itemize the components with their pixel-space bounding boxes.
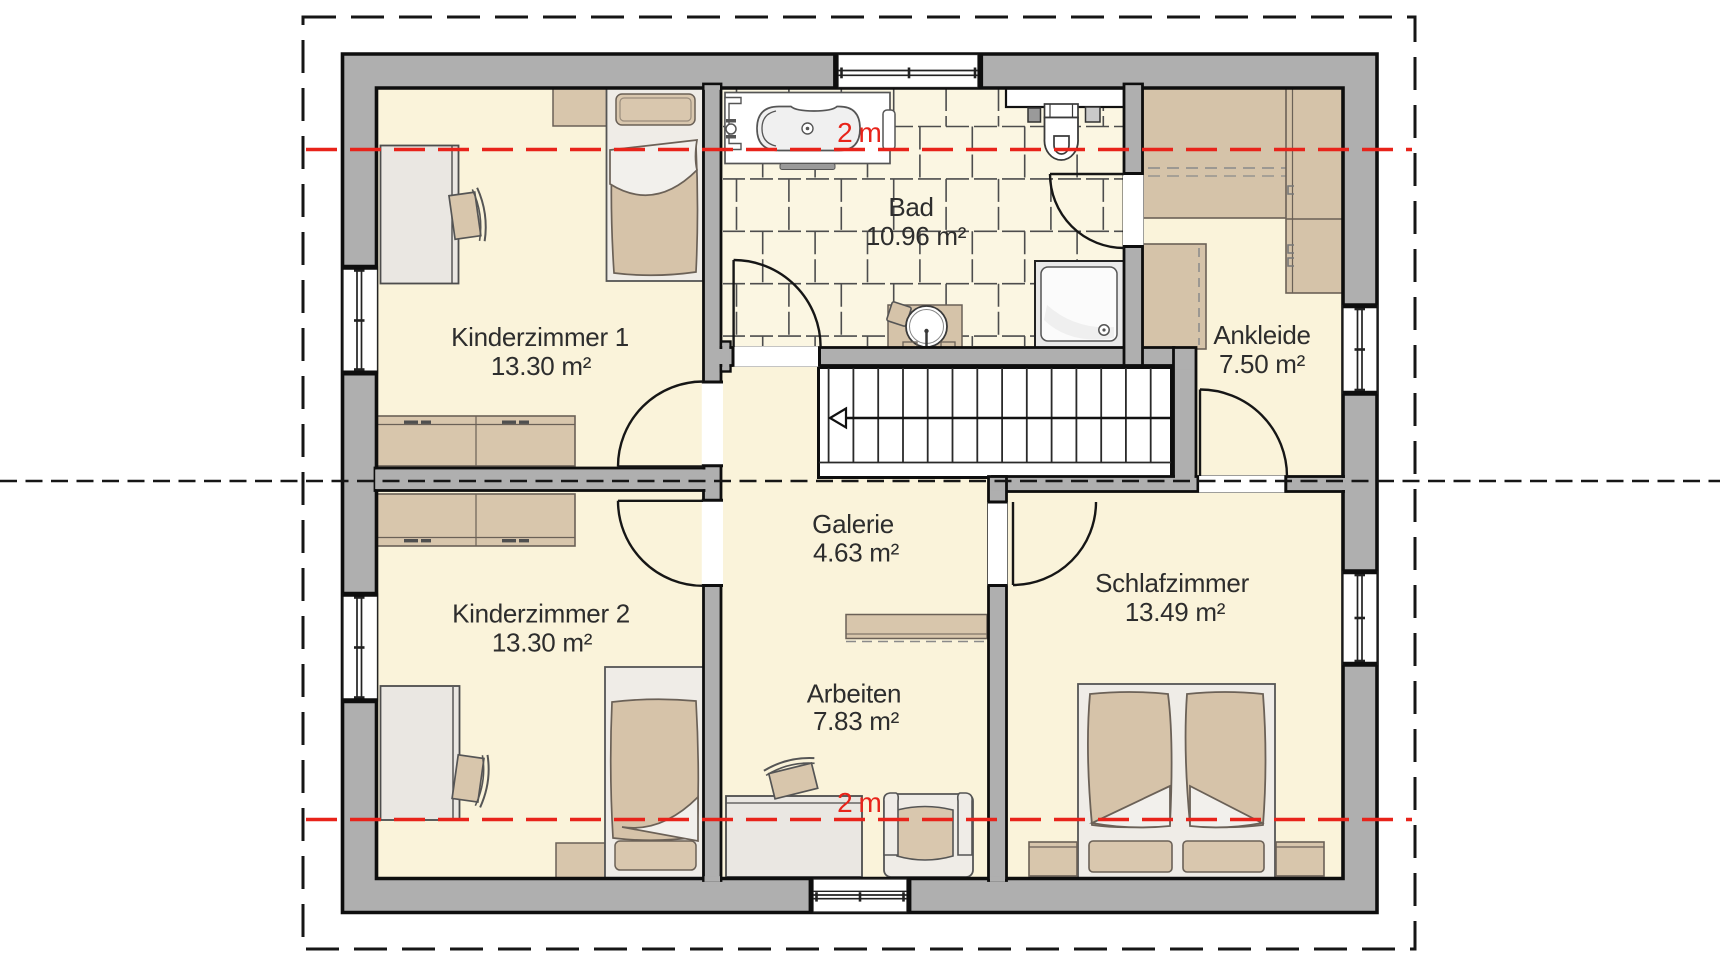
svg-text:Kinderzimmer 2: Kinderzimmer 2 — [452, 599, 630, 629]
svg-text:Ankleide: Ankleide — [1213, 320, 1310, 350]
svg-text:13.30 m²: 13.30 m² — [492, 628, 593, 658]
svg-text:10.96 m²: 10.96 m² — [866, 221, 967, 251]
svg-text:Schlafzimmer: Schlafzimmer — [1095, 568, 1250, 598]
svg-text:13.30 m²: 13.30 m² — [491, 351, 592, 381]
svg-text:Bad: Bad — [888, 192, 933, 222]
svg-text:2 m: 2 m — [837, 787, 881, 818]
svg-text:Galerie: Galerie — [812, 509, 894, 539]
svg-text:Kinderzimmer 1: Kinderzimmer 1 — [451, 322, 629, 352]
svg-text:Arbeiten: Arbeiten — [807, 679, 901, 709]
svg-text:13.49 m²: 13.49 m² — [1125, 597, 1226, 627]
svg-text:7.50 m²: 7.50 m² — [1219, 349, 1306, 379]
svg-text:4.63 m²: 4.63 m² — [813, 538, 900, 568]
svg-text:7.83 m²: 7.83 m² — [813, 706, 900, 736]
svg-text:2 m: 2 m — [837, 117, 881, 148]
